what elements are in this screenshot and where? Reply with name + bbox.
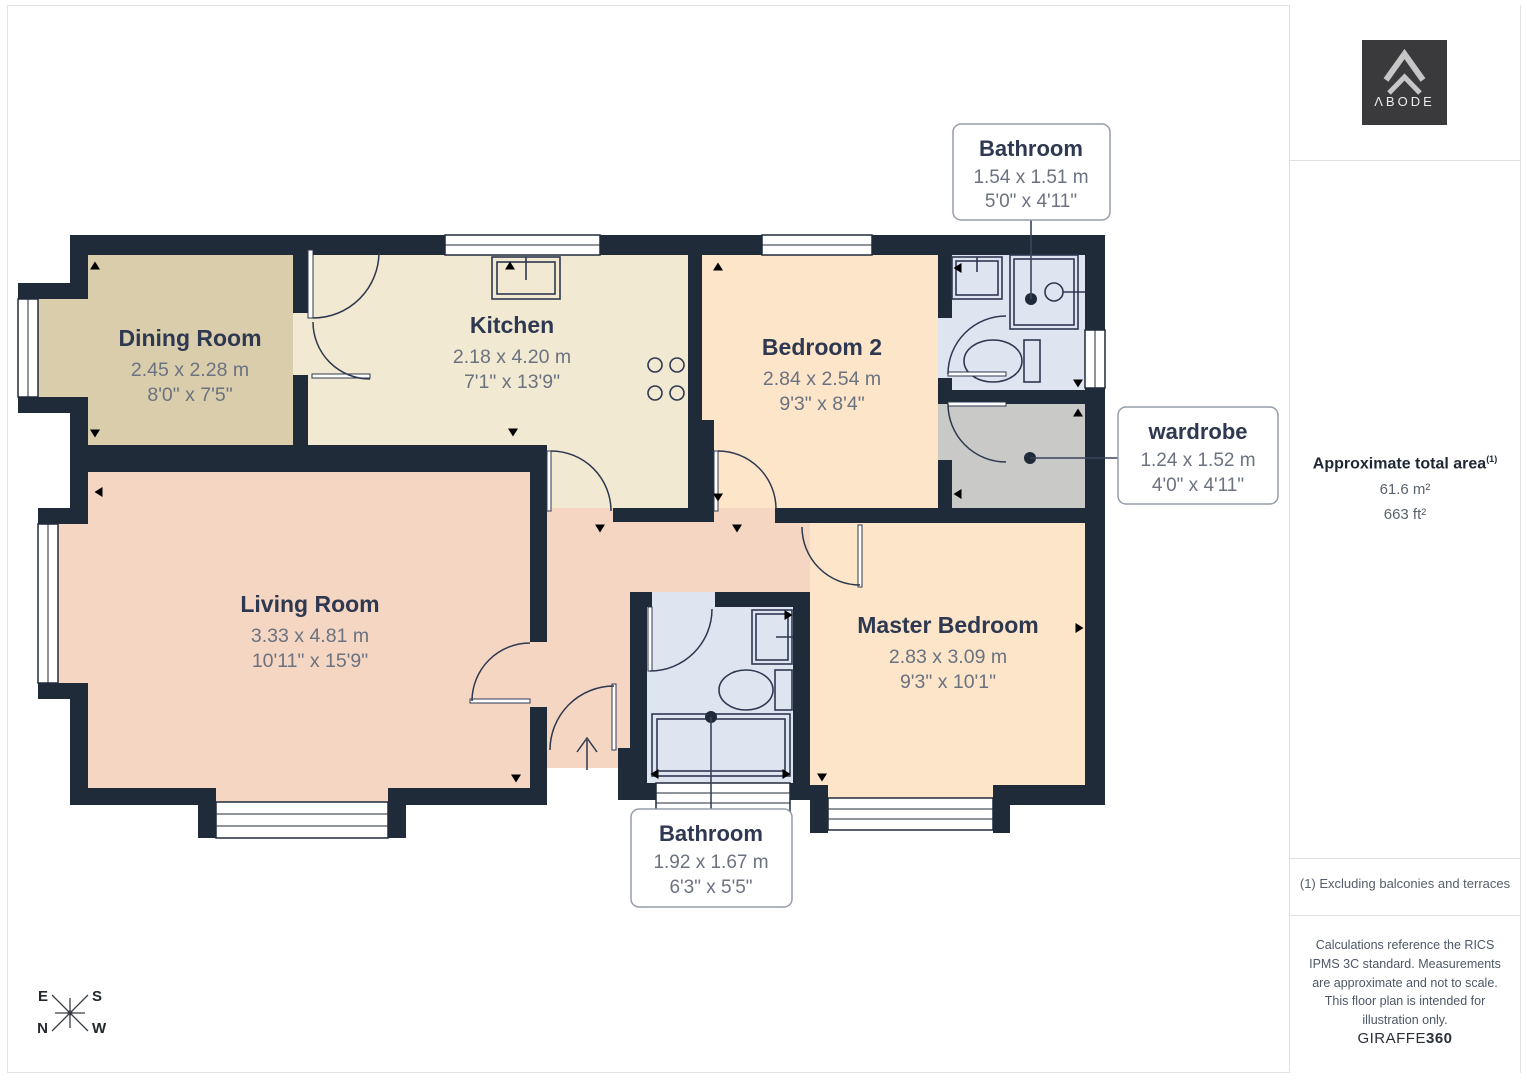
doorway-wardrobe	[938, 404, 952, 460]
total-area-imperial: 663 ft²	[1290, 506, 1520, 523]
doorway-bathroom-ensuite	[938, 318, 952, 378]
abode-logo: ΛBODE	[1362, 40, 1447, 125]
sidebar: ΛBODE Approximate total area(1) 61.6 m² …	[1290, 0, 1520, 1080]
sidebar-section-divider	[1290, 160, 1520, 161]
giraffe360-brand: GIRAFFE360	[1290, 1030, 1520, 1047]
svg-text:8'0" x 7'5": 8'0" x 7'5"	[147, 384, 232, 406]
window	[445, 235, 600, 255]
svg-text:Kitchen: Kitchen	[470, 312, 554, 338]
doorway-living	[530, 642, 547, 707]
window	[828, 798, 993, 830]
doorway-bathroom-main	[652, 592, 715, 607]
floor-hallway	[547, 592, 630, 748]
toilet	[719, 670, 792, 710]
floor-dining-bay	[36, 299, 88, 397]
svg-text:2.18 x 4.20 m: 2.18 x 4.20 m	[453, 346, 571, 368]
svg-text:3.33 x 4.81 m: 3.33 x 4.81 m	[251, 625, 369, 647]
svg-text:Master Bedroom: Master Bedroom	[857, 612, 1038, 638]
doorway-bedroom-2	[714, 508, 775, 523]
svg-text:9'3" x 10'1": 9'3" x 10'1"	[900, 671, 996, 693]
svg-text:2.45 x 2.28 m: 2.45 x 2.28 m	[131, 359, 249, 381]
compass-west: W	[92, 1020, 107, 1037]
room-label-bedroom-2: Bedroom 2 2.84 x 2.54 m 9'3" x 8'4"	[762, 334, 882, 415]
svg-text:Living Room: Living Room	[240, 591, 379, 617]
page: Dining Room 2.45 x 2.28 m 8'0" x 7'5" Ki…	[0, 0, 1527, 1080]
floor-hallway-top	[547, 522, 793, 592]
svg-text:9'3" x 8'4": 9'3" x 8'4"	[779, 393, 864, 415]
total-area-title: Approximate total area(1)	[1290, 454, 1520, 473]
svg-text:2.84 x 2.54 m: 2.84 x 2.54 m	[763, 368, 881, 390]
floor-master-bay	[828, 785, 993, 798]
svg-text:Bathroom: Bathroom	[979, 136, 1083, 161]
window	[18, 299, 38, 397]
doorway-master	[793, 523, 810, 592]
svg-text:Dining Room: Dining Room	[118, 325, 261, 351]
svg-text:Bathroom: Bathroom	[659, 821, 763, 846]
room-label-kitchen: Kitchen 2.18 x 4.20 m 7'1" x 13'9"	[453, 312, 571, 393]
window	[38, 524, 58, 683]
svg-text:2.83 x 3.09 m: 2.83 x 3.09 m	[889, 646, 1007, 668]
area-footnote: (1) Excluding balconies and terraces	[1296, 876, 1514, 891]
compass-north: N	[37, 1020, 48, 1037]
floor-living-bay-bottom	[216, 788, 388, 802]
svg-text:1.92 x 1.67 m: 1.92 x 1.67 m	[653, 852, 768, 873]
svg-text:4'0" x 4'11": 4'0" x 4'11"	[1152, 475, 1244, 496]
window	[1085, 330, 1105, 388]
footnote-marker: (1)	[1486, 454, 1497, 464]
floor-wardrobe	[952, 404, 1085, 508]
compass-rose: E S N W	[37, 988, 107, 1037]
svg-text:10'11" x 15'9": 10'11" x 15'9"	[252, 650, 368, 672]
room-label-living-room: Living Room 3.33 x 4.81 m 10'11" x 15'9"	[240, 591, 379, 672]
compass-south: S	[92, 988, 102, 1005]
total-area-metric: 61.6 m²	[1290, 481, 1520, 498]
disclaimer-text: Calculations reference the RICS IPMS 3C …	[1307, 936, 1503, 1030]
abode-logo-text: ΛBODE	[1374, 94, 1435, 109]
abode-logo-icon	[1362, 40, 1447, 102]
svg-text:Bedroom 2: Bedroom 2	[762, 334, 882, 360]
sidebar-section-divider	[1290, 915, 1520, 916]
svg-text:1.24 x 1.52 m: 1.24 x 1.52 m	[1140, 450, 1255, 471]
svg-text:7'1" x 13'9": 7'1" x 13'9"	[464, 371, 560, 393]
floorplan: Dining Room 2.45 x 2.28 m 8'0" x 7'5" Ki…	[0, 0, 1290, 1080]
svg-text:5'0" x 4'11": 5'0" x 4'11"	[985, 191, 1077, 212]
floor-hallway-entry	[547, 748, 618, 768]
doorway-kitchen-hall	[547, 508, 613, 522]
doorway-dining-kitchen	[293, 313, 308, 375]
window	[762, 235, 872, 255]
window	[216, 802, 388, 838]
svg-text:wardrobe: wardrobe	[1147, 419, 1247, 444]
svg-text:6'3" x 5'5": 6'3" x 5'5"	[669, 877, 752, 898]
sidebar-section-divider	[1290, 858, 1520, 859]
compass-east: E	[38, 988, 48, 1005]
svg-text:1.54 x 1.51 m: 1.54 x 1.51 m	[973, 167, 1088, 188]
total-area-block: Approximate total area(1) 61.6 m² 663 ft…	[1290, 454, 1520, 523]
floor-living-bay	[56, 524, 88, 683]
